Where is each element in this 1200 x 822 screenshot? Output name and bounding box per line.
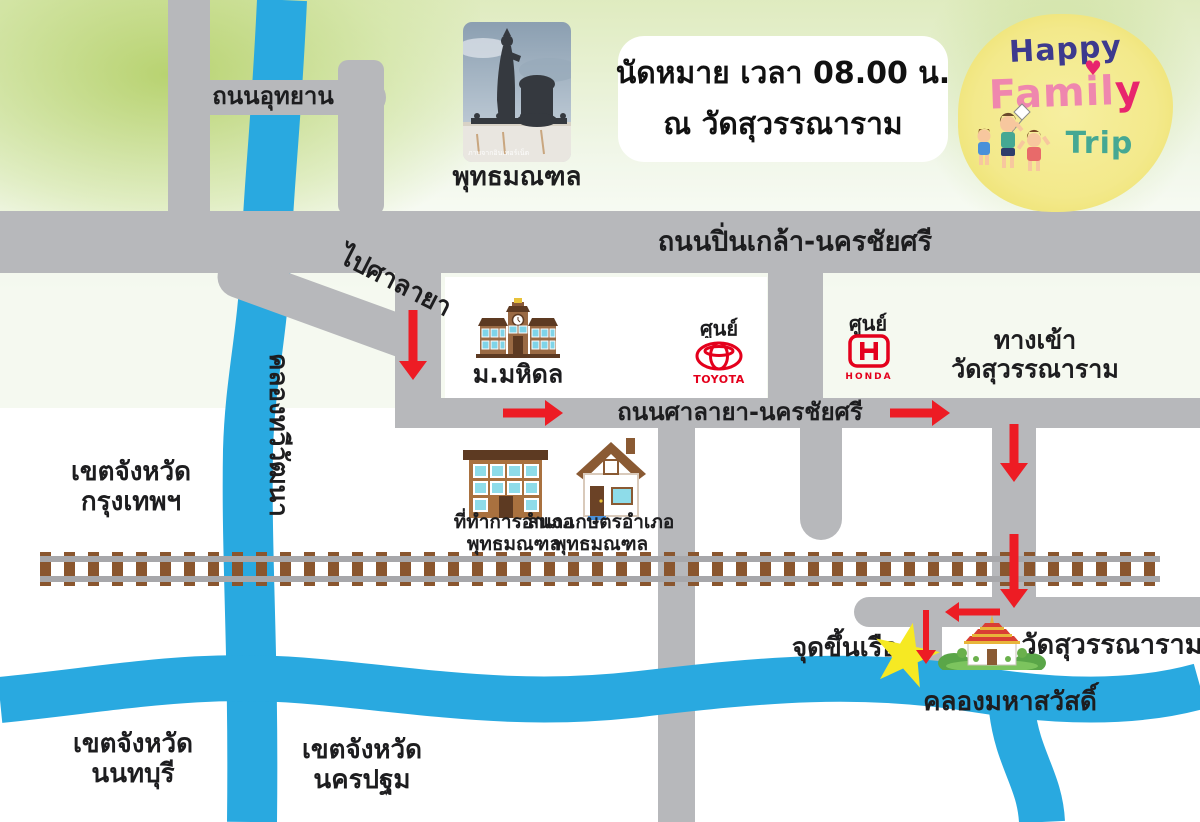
region-bangkok-line2: กรุงเทพฯ xyxy=(71,488,191,518)
honda-center-label: ศูนย์ xyxy=(849,313,887,336)
appointment-line2: ณ วัดสุวรรณาราม xyxy=(663,101,902,148)
hand-drawn-trip-map: นัดหมาย เวลา 08.00 น. ณ วัดสุวรรณาราม Ha… xyxy=(0,0,1200,822)
toyota-wordmark: TOYOTA xyxy=(687,373,751,386)
honda-emblem-icon xyxy=(848,334,890,368)
phutthamonthon-photo: ภาพจากอินเทอร์เน็ต xyxy=(463,22,571,162)
temple-entrance-line1: ทางเข้า xyxy=(951,326,1119,355)
toyota-emblem-icon xyxy=(694,341,744,371)
route-arrow-right-1 xyxy=(503,399,563,427)
photo-watermark: ภาพจากอินเทอร์เน็ต xyxy=(468,148,530,157)
phutthamonthon-caption: พุทธมณฑล xyxy=(453,163,582,193)
family-cartoon-icon xyxy=(972,102,1058,176)
toyota-logo: TOYOTA xyxy=(687,338,751,390)
agriculture-office-line2: พุทธมณฑล xyxy=(528,534,675,556)
rail-bottom xyxy=(40,576,1160,582)
agriculture-office-icon xyxy=(570,434,652,520)
route-arrow-down-2 xyxy=(999,424,1029,482)
route-arrow-down-3 xyxy=(999,534,1029,608)
agriculture-office-line1: สนง.เกษตรอำเภอ xyxy=(528,512,675,534)
appointment-note: นัดหมาย เวลา 08.00 น. ณ วัดสุวรรณาราม xyxy=(618,36,948,162)
mahidol-label: ม.มหิดล xyxy=(473,361,564,390)
route-arrow-right-2 xyxy=(890,399,950,427)
road-label-uthayan: ถนนอุทยาน xyxy=(212,83,334,111)
temple-entrance-line2: วัดสุวรรณาราม xyxy=(951,355,1119,384)
mahidol-university-icon xyxy=(476,296,560,358)
region-nakhonpathom: เขตจังหวัด นครปฐม xyxy=(302,736,422,796)
region-nakhonpathom-line1: เขตจังหวัด xyxy=(302,736,422,766)
rail-top xyxy=(40,556,1160,562)
appointment-line1: นัดหมาย เวลา 08.00 น. xyxy=(616,50,950,97)
agriculture-office-label: สนง.เกษตรอำเภอ พุทธมณฑล xyxy=(528,512,675,556)
temple-entrance-label: ทางเข้า วัดสุวรรณาราม xyxy=(951,326,1119,384)
honda-wordmark: HONDA xyxy=(840,372,898,382)
region-nonthaburi-line2: นนทบุรี xyxy=(73,760,193,790)
road-label-pinklao: ถนนปิ่นเกล้า-นครชัยศรี xyxy=(658,226,932,257)
region-bangkok-line1: เขตจังหวัด xyxy=(71,458,191,488)
region-nakhonpathom-line2: นครปฐม xyxy=(302,766,422,796)
region-nonthaburi: เขตจังหวัด นนทบุรี xyxy=(73,730,193,790)
railroad-track xyxy=(40,552,1160,586)
route-arrow-down-boat xyxy=(915,610,937,664)
district-office-icon xyxy=(463,440,548,520)
region-bangkok: เขตจังหวัด กรุงเทพฯ xyxy=(71,458,191,518)
temple-label: วัดสุวรรณาราม xyxy=(1021,629,1200,660)
boat-point-label: จุดขึ้นเรือ xyxy=(792,634,898,664)
honda-logo: HONDA xyxy=(840,334,898,386)
region-nonthaburi-line1: เขตจังหวัด xyxy=(73,730,193,760)
happy-family-trip-logo: Happy Family ♥ Trip xyxy=(958,14,1173,212)
buddha-statue-image: ภาพจากอินเทอร์เน็ต xyxy=(463,22,571,162)
route-arrow-down-1 xyxy=(398,310,428,380)
logo-heart-icon: ♥ xyxy=(986,56,1200,80)
canal-label-thawi-watthana: คลองทวีวัฒนา xyxy=(262,353,292,517)
canal-label-mahasawat: คลองมหาสวัสดิ์ xyxy=(923,688,1097,718)
route-arrow-left xyxy=(945,601,1000,623)
road-label-salaya: ถนนศาลายา-นครชัยศรี xyxy=(617,399,863,427)
